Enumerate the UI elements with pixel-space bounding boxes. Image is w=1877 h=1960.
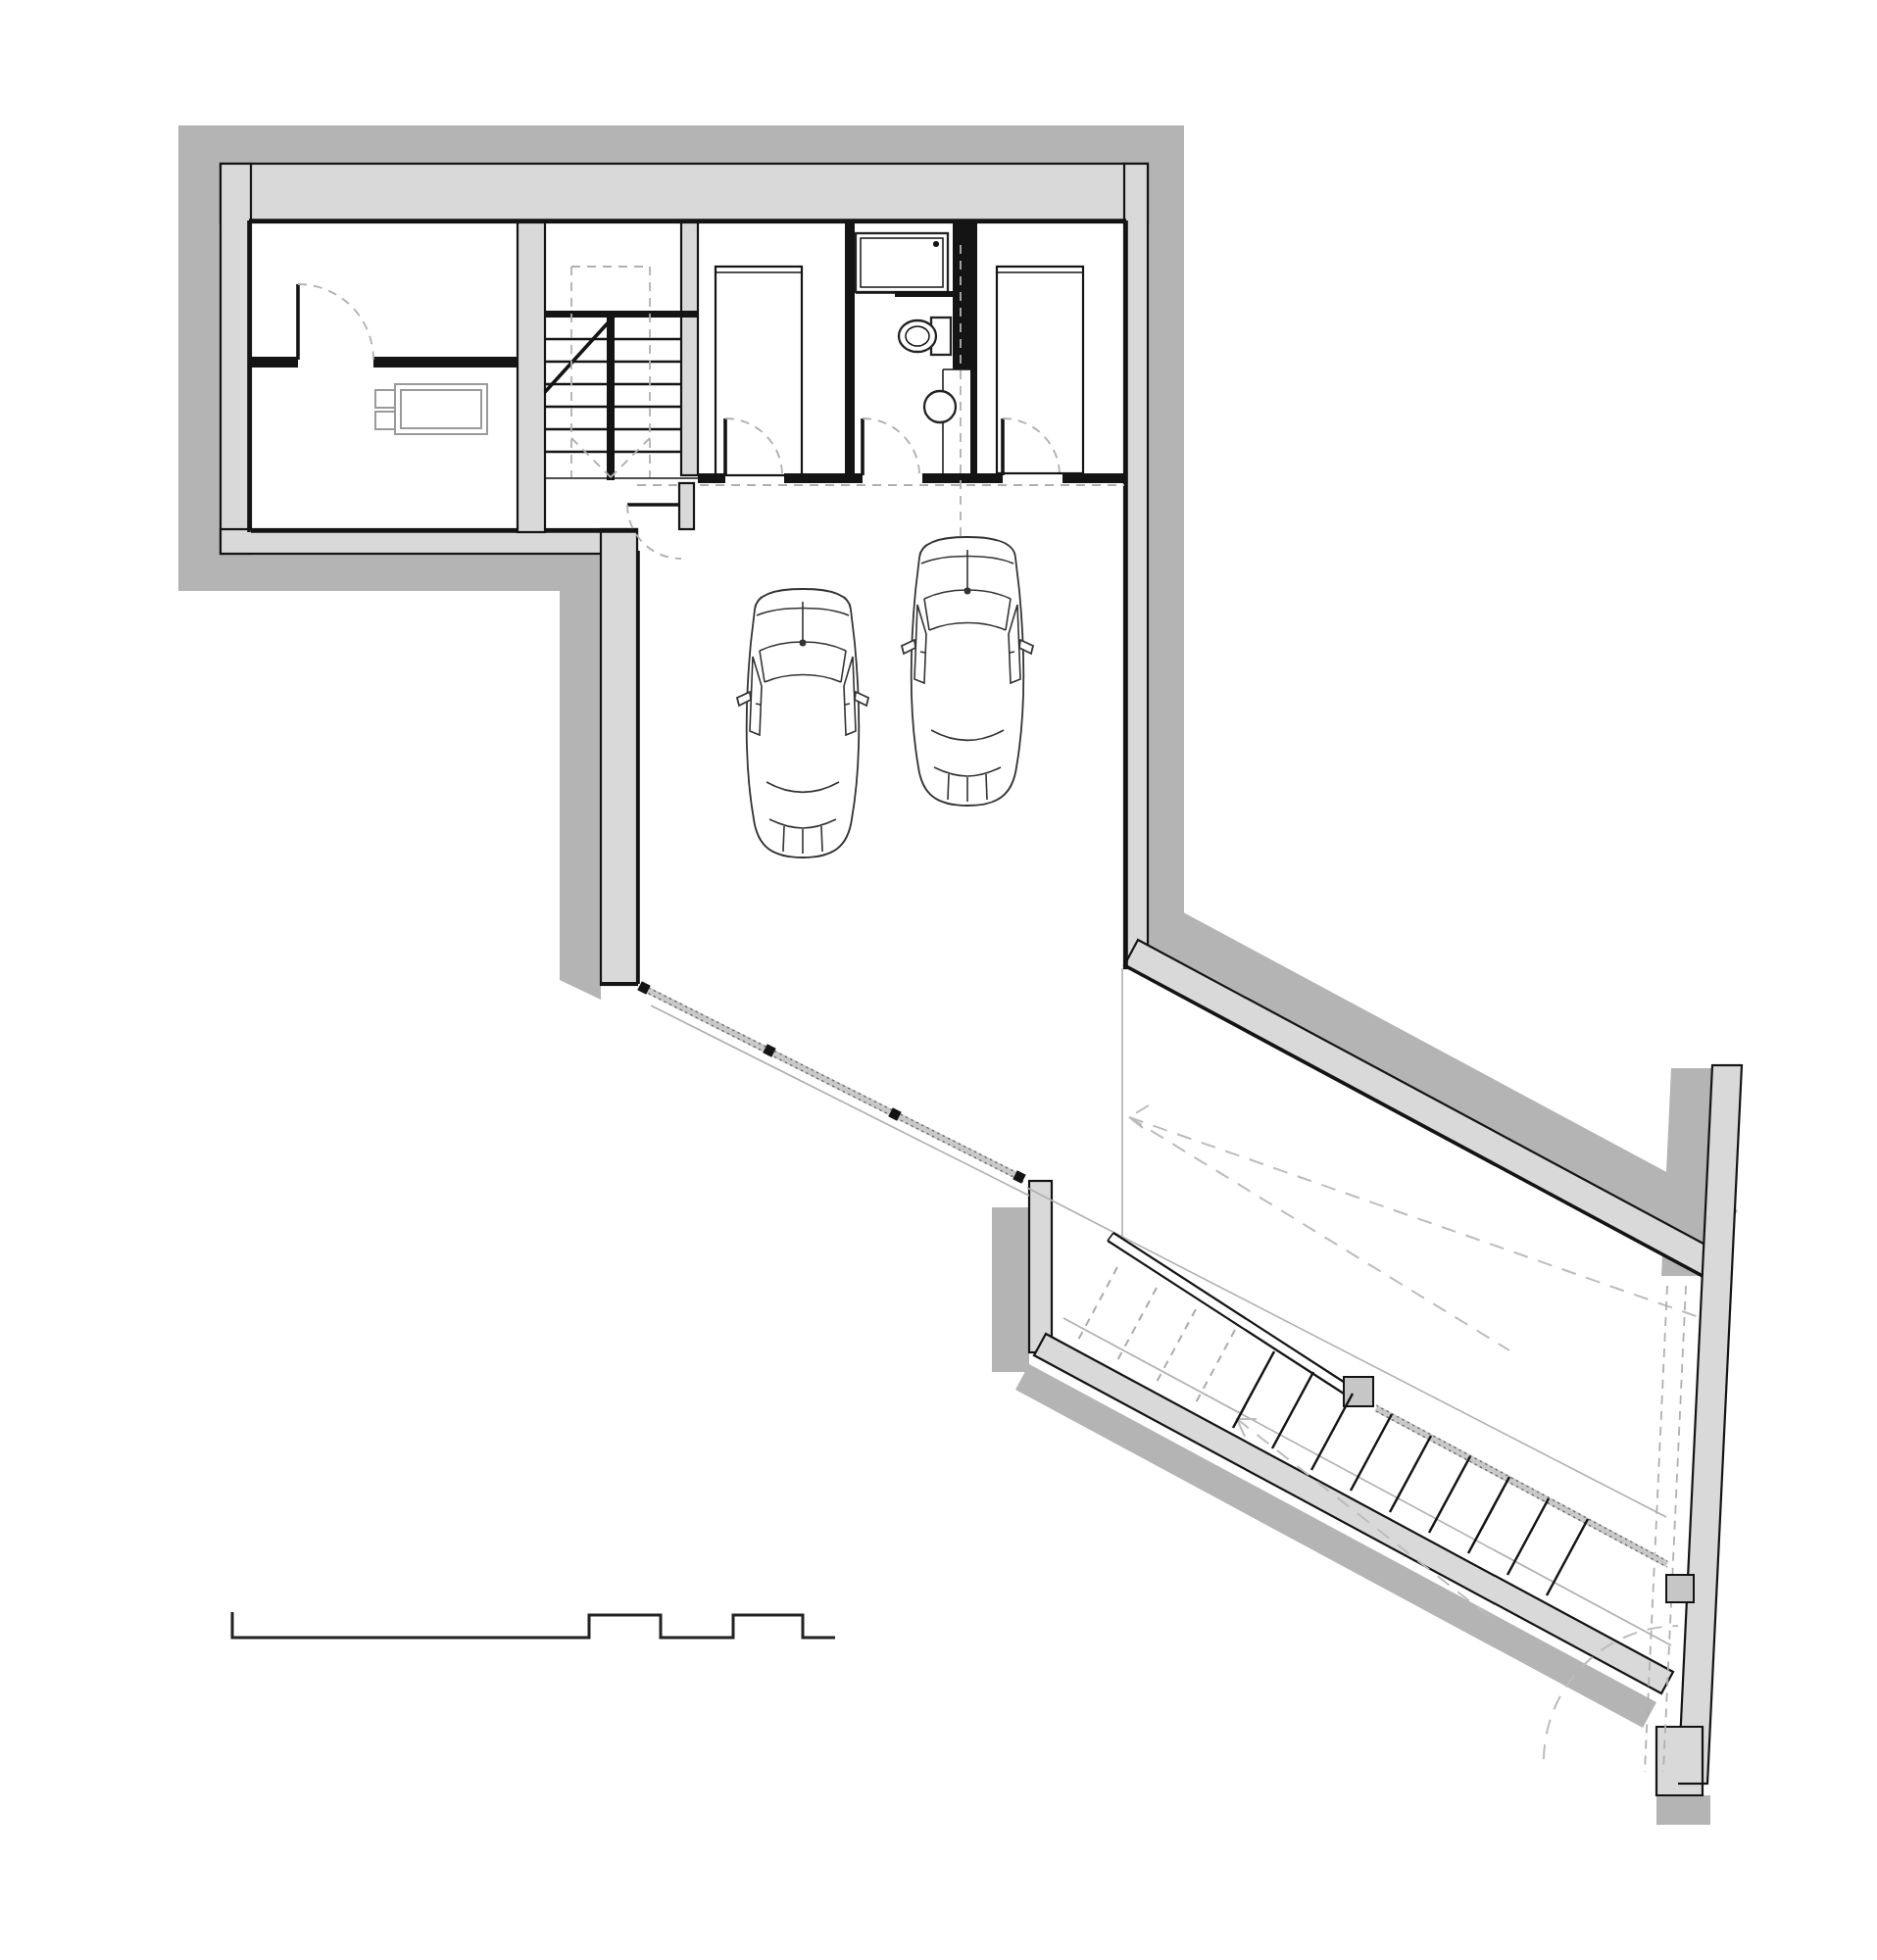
car-left	[737, 589, 868, 857]
floor-plan-canvas	[0, 0, 1877, 1960]
floor-plan-drawing	[0, 0, 1877, 1960]
railing-post-2	[1666, 1575, 1694, 1602]
boiler-room-door	[298, 284, 373, 360]
washbasin	[924, 391, 956, 422]
toilet	[899, 318, 951, 355]
garage-glazed-front	[637, 981, 1025, 1183]
car-right	[902, 537, 1033, 806]
staircase	[545, 267, 698, 480]
stair-break-line	[545, 316, 615, 392]
shower-tray	[856, 233, 965, 297]
stair-treads-right-flight	[615, 339, 681, 452]
boiler-tank	[375, 384, 487, 434]
section-step-line	[232, 1612, 835, 1638]
bathroom	[856, 233, 965, 559]
bathroom-door	[863, 418, 919, 475]
storage-closets	[716, 267, 1083, 475]
storage-right-door	[1003, 418, 1060, 475]
site-earth-poche	[178, 125, 1738, 1825]
storage-left-door	[725, 418, 782, 475]
exterior-walls	[221, 164, 1742, 1784]
